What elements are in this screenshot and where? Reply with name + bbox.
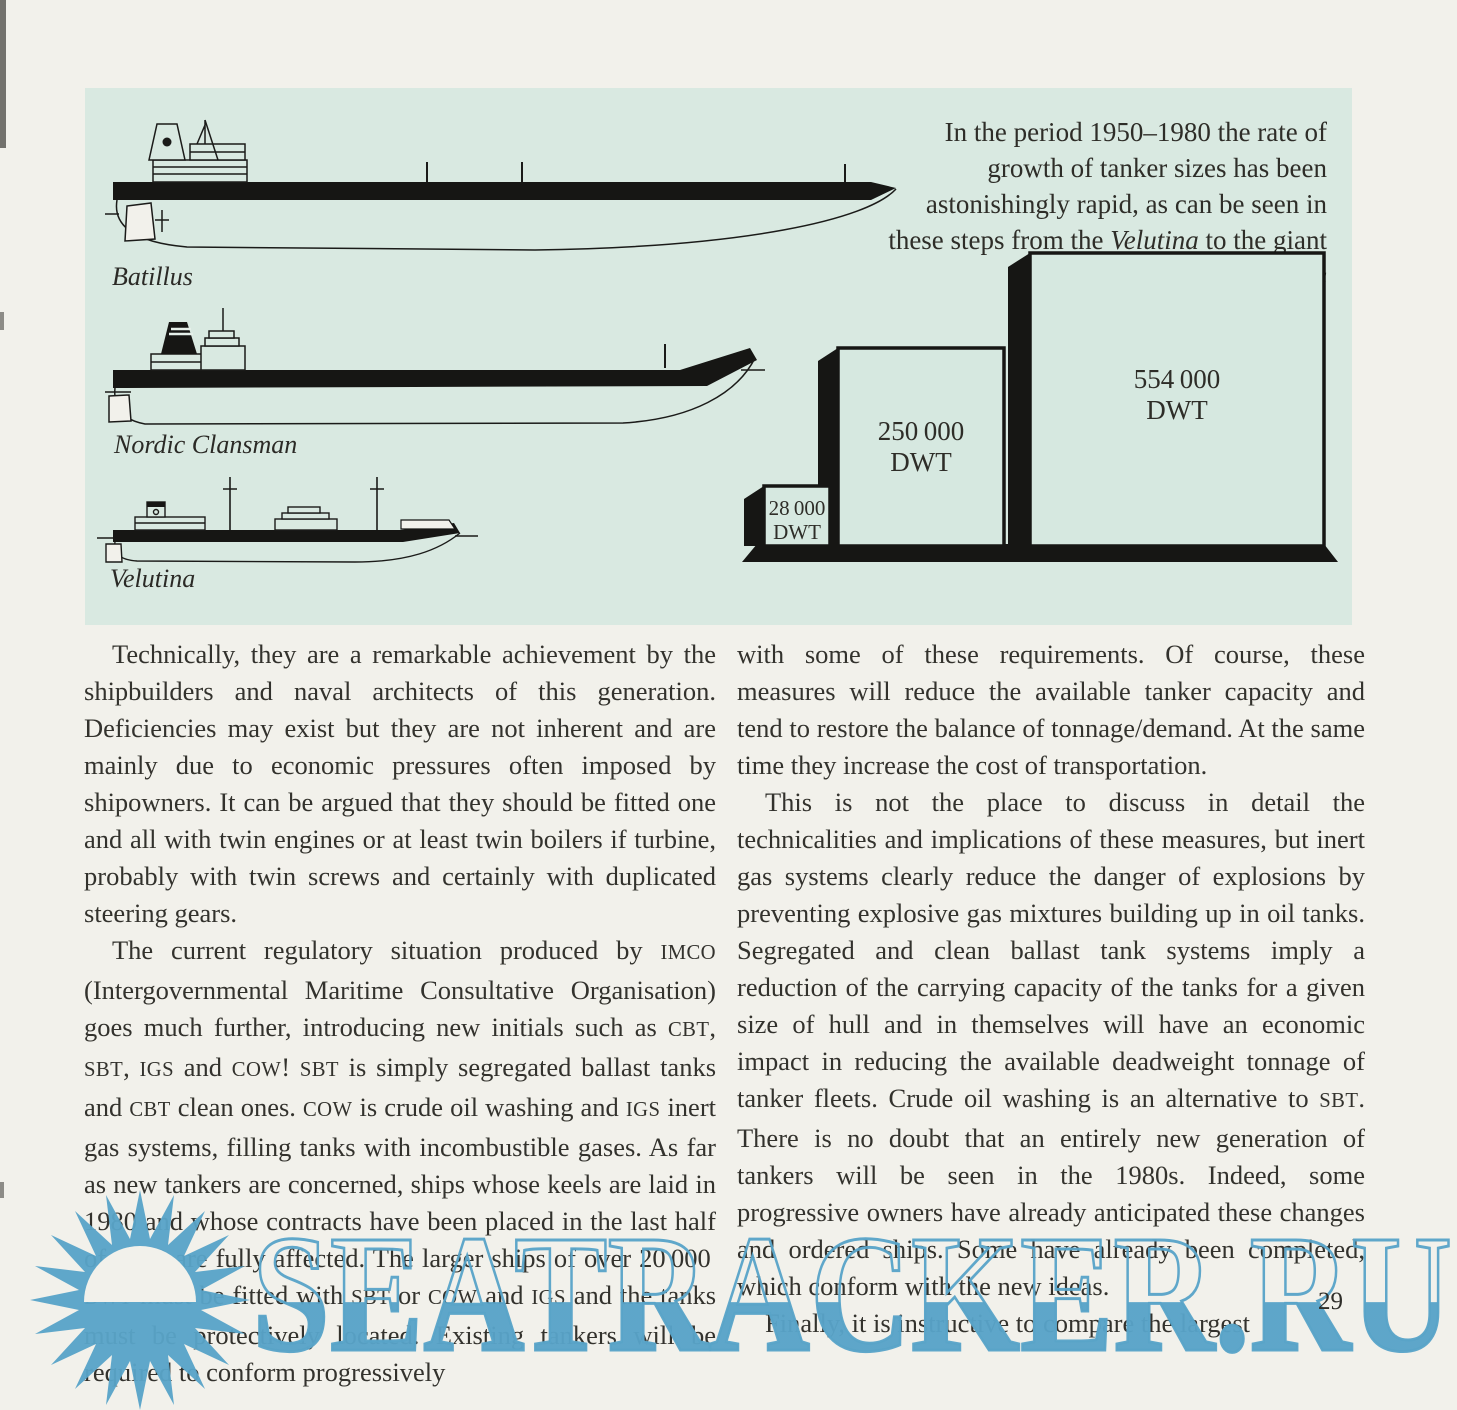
ship-drawing-nordic-clansman — [105, 302, 765, 434]
article-right-column: with some of these requirements. Of cour… — [737, 636, 1365, 1342]
ship-label-velutina: Velutina — [110, 564, 195, 594]
scan-edge-mark — [0, 312, 4, 330]
paragraph: The current regulatory situation produce… — [84, 932, 716, 1391]
bar-unit-label: DWT — [773, 520, 821, 544]
article-left-column: Technically, they are a remarkable achie… — [84, 636, 716, 1391]
ship-drawing-velutina — [103, 472, 478, 567]
scan-edge-artifact — [0, 0, 6, 148]
book-page: In the period 1950–1980 the rate of grow… — [0, 0, 1457, 1410]
bar-unit-label: DWT — [890, 447, 952, 477]
ship-figure-velutina — [103, 472, 478, 567]
paragraph: Technically, they are a remarkable achie… — [84, 636, 716, 932]
ship-figure-nordic-clansman — [105, 302, 765, 434]
chart-bar-shadow — [744, 486, 764, 546]
paragraph: with some of these requirements. Of cour… — [737, 636, 1365, 784]
scan-edge-mark — [0, 1182, 4, 1198]
bar-value-label: 28 000 — [769, 496, 826, 520]
ship-label-nordic-clansman: Nordic Clansman — [114, 430, 297, 460]
page-number: 29 — [1318, 1288, 1343, 1316]
bar-value-label: 554 000 — [1134, 364, 1220, 394]
bar-value-label: 250 000 — [878, 416, 964, 446]
bar-unit-label: DWT — [1146, 395, 1208, 425]
chart-bar-shadow — [1008, 253, 1030, 546]
paragraph: Finally, it is instructive to compare th… — [737, 1305, 1365, 1342]
paragraph: This is not the place to discuss in deta… — [737, 784, 1365, 1305]
ship-label-batillus: Batillus — [112, 262, 193, 292]
tanker-size-chart: 28 000 DWT 250 000 DWT 554 000 DWT — [740, 228, 1340, 568]
